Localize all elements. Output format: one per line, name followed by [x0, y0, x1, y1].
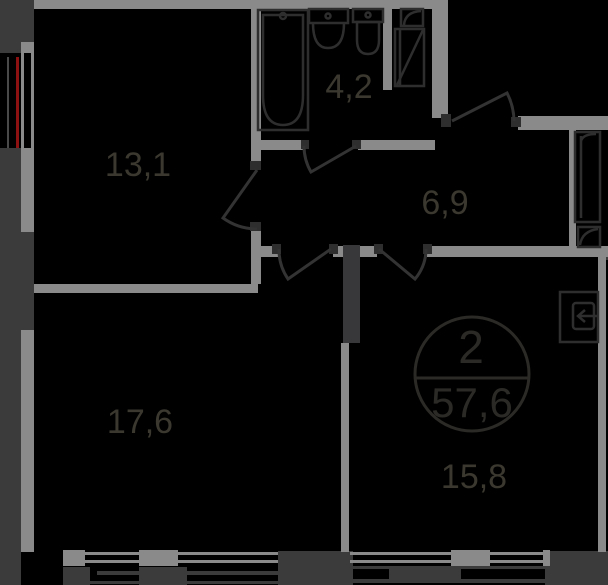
balcony-rail-line — [7, 57, 9, 148]
floor-plan: 13,1 4,2 6,9 17,6 15,8 2 57,6 — [0, 0, 608, 585]
room-area-label: 13,1 — [105, 146, 171, 184]
floor-plan-canvas: 13,1 4,2 6,9 17,6 15,8 2 57,6 — [0, 0, 608, 585]
bathroom-area-label: 4,2 — [325, 68, 372, 106]
thick-interior-wall — [343, 245, 360, 343]
hallway-area-label: 6,9 — [421, 184, 468, 222]
bedroom-area-label: 15,8 — [441, 458, 507, 496]
apartment-total-area: 57,6 — [431, 379, 513, 426]
living-room-area-label: 17,6 — [107, 403, 173, 441]
apartment-number: 2 — [458, 321, 484, 373]
red-marking-line — [16, 57, 19, 148]
